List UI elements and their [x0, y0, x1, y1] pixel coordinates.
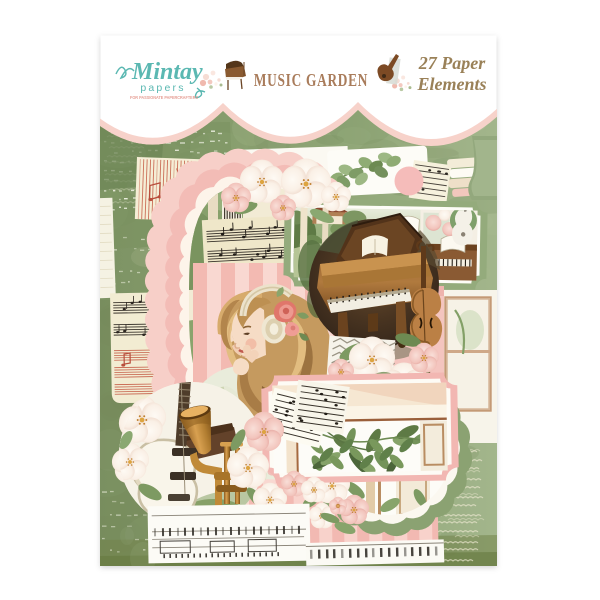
svg-text:MUSIC GARDEN: MUSIC GARDEN	[254, 71, 368, 90]
svg-text:Elements: Elements	[416, 74, 486, 94]
svg-text:27 Paper: 27 Paper	[418, 53, 486, 73]
svg-text:papers: papers	[140, 82, 185, 94]
svg-text:FOR PASSIONATE PAPERCRAFTERS: FOR PASSIONATE PAPERCRAFTERS	[130, 95, 198, 100]
